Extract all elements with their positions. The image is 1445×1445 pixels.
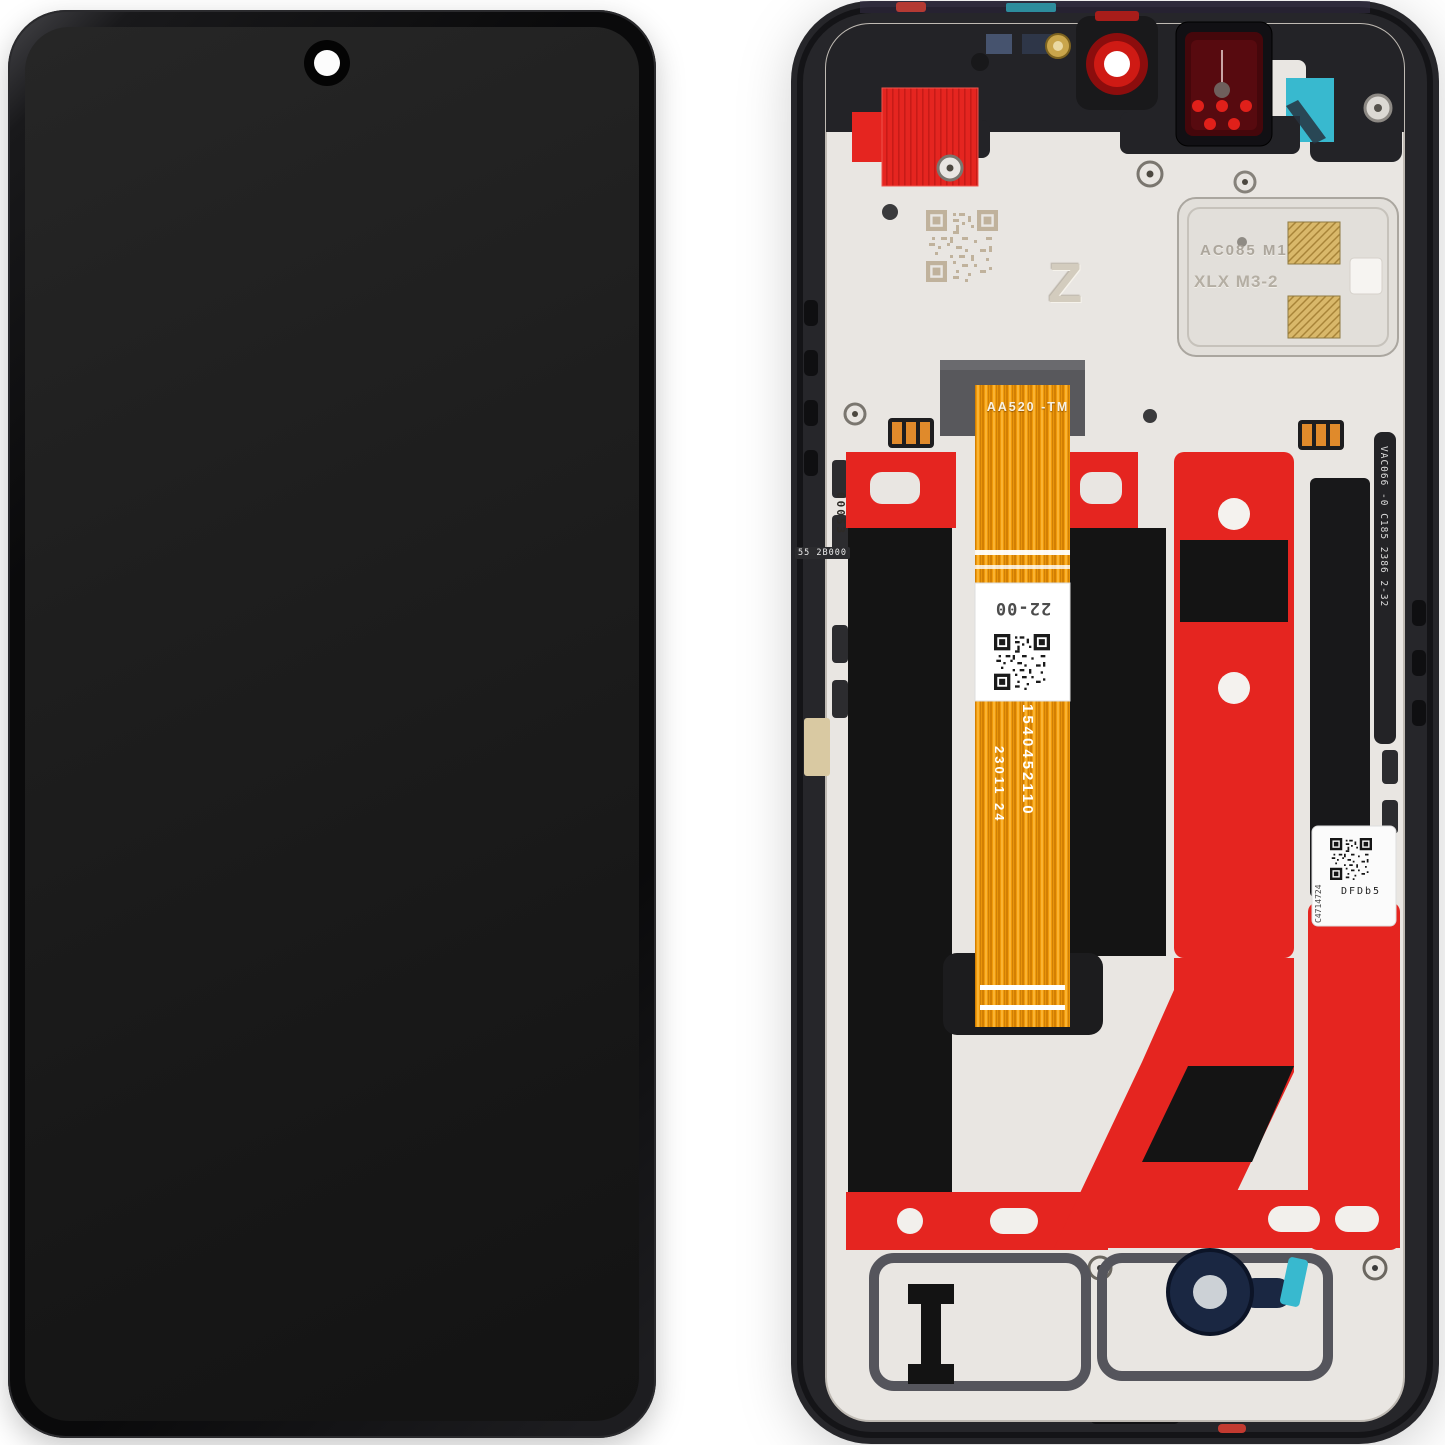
product-photo-scene: AA520 -TM 22-00 1540452110 23011 24 0005… — [0, 0, 1445, 1445]
service-label — [1312, 826, 1396, 926]
gold-contact-pad — [1288, 296, 1340, 338]
top-teal-strip — [1006, 3, 1056, 12]
front-screen — [25, 27, 639, 1421]
board-connector-right — [1298, 420, 1344, 450]
board-connector-left — [888, 418, 934, 448]
sensor-module — [1176, 22, 1272, 146]
punch-hole-camera — [304, 40, 350, 86]
top-red-tab — [896, 2, 926, 12]
camera-ring-module — [1076, 11, 1158, 110]
beige-tape-tab — [804, 718, 830, 776]
gold-contact-pad — [1288, 222, 1340, 264]
flex-white-label — [975, 583, 1070, 701]
phone-front-assembly — [8, 10, 656, 1438]
camera-lens-reflection — [314, 50, 340, 76]
back-plate-graphic — [790, 0, 1440, 1445]
speaker-module — [1178, 198, 1398, 356]
phone-back-assembly: AA520 -TM 22-00 1540452110 23011 24 0005… — [790, 0, 1440, 1445]
right-edge-flex — [1374, 432, 1396, 744]
